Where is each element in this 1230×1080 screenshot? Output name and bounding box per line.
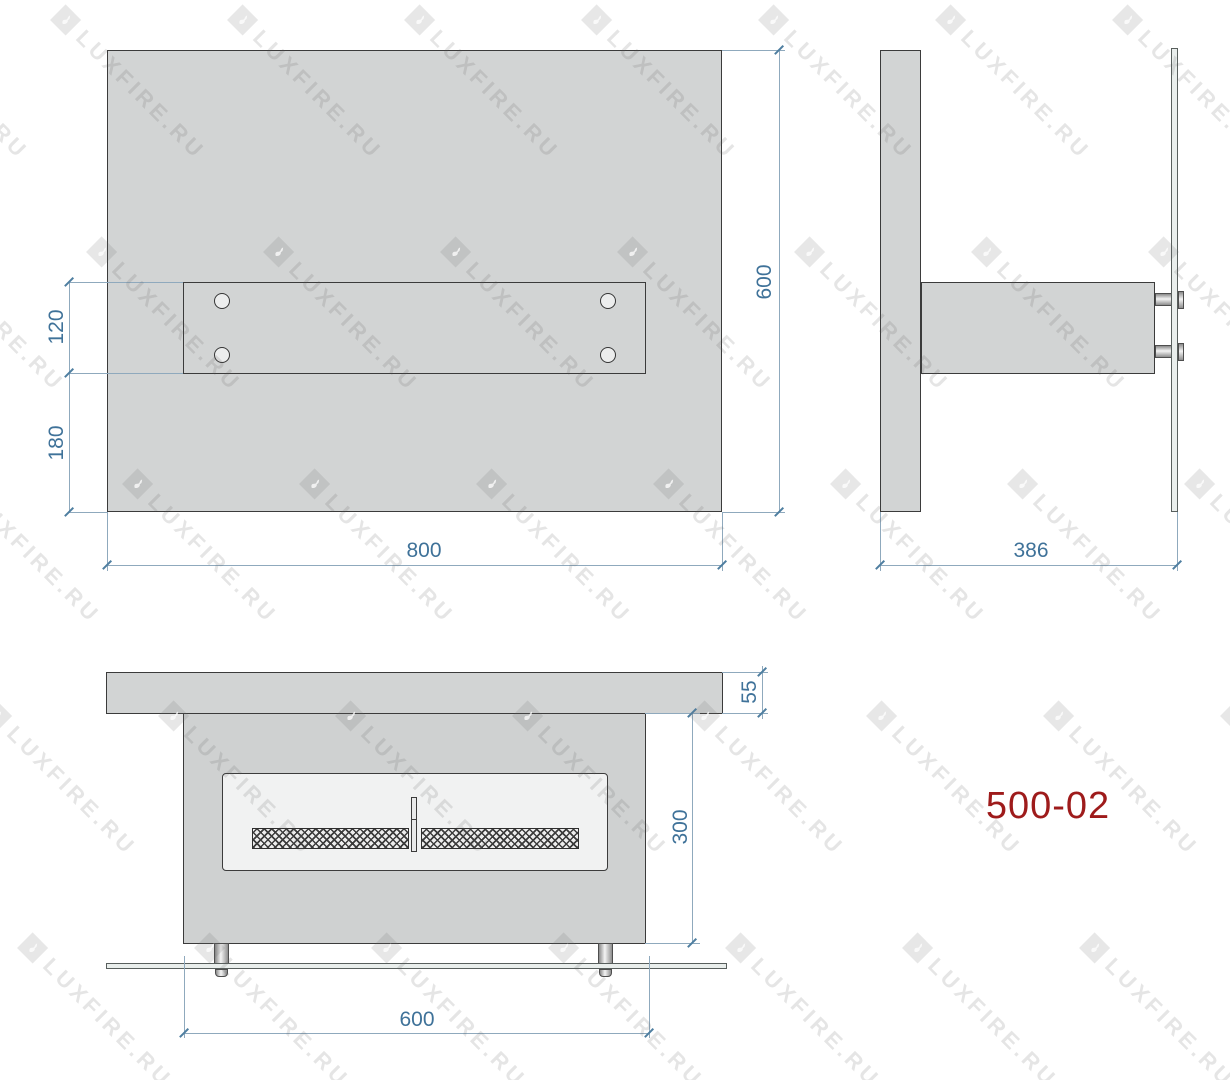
- model-number-label: 500-02: [938, 785, 1158, 828]
- dim-label-bracket-offset: 180: [45, 403, 69, 483]
- extension-line: [184, 956, 185, 1038]
- dimension-line: [880, 565, 1177, 566]
- dim-label-bracket-height: 120: [45, 287, 69, 367]
- dimension-annotations: 120 180 600 800 386 55: [0, 0, 1230, 1080]
- dim-label-body-width: 600: [377, 1008, 457, 1032]
- extension-line: [69, 282, 183, 283]
- extension-line: [69, 373, 183, 374]
- dim-label-top-thickness: 55: [738, 652, 762, 732]
- dimension-line: [69, 282, 70, 512]
- extension-line: [649, 956, 650, 1038]
- dim-label-panel-width: 800: [384, 539, 464, 563]
- dim-label-body-height: 300: [669, 787, 693, 867]
- extension-line: [69, 512, 107, 513]
- dimension-line: [779, 50, 780, 512]
- dim-label-panel-height: 600: [753, 242, 777, 322]
- dimension-line: [107, 565, 722, 566]
- technical-drawing-canvas: 120 180 600 800 386 55: [0, 0, 1230, 1080]
- dim-label-depth: 386: [991, 539, 1071, 563]
- dimension-line: [184, 1033, 649, 1034]
